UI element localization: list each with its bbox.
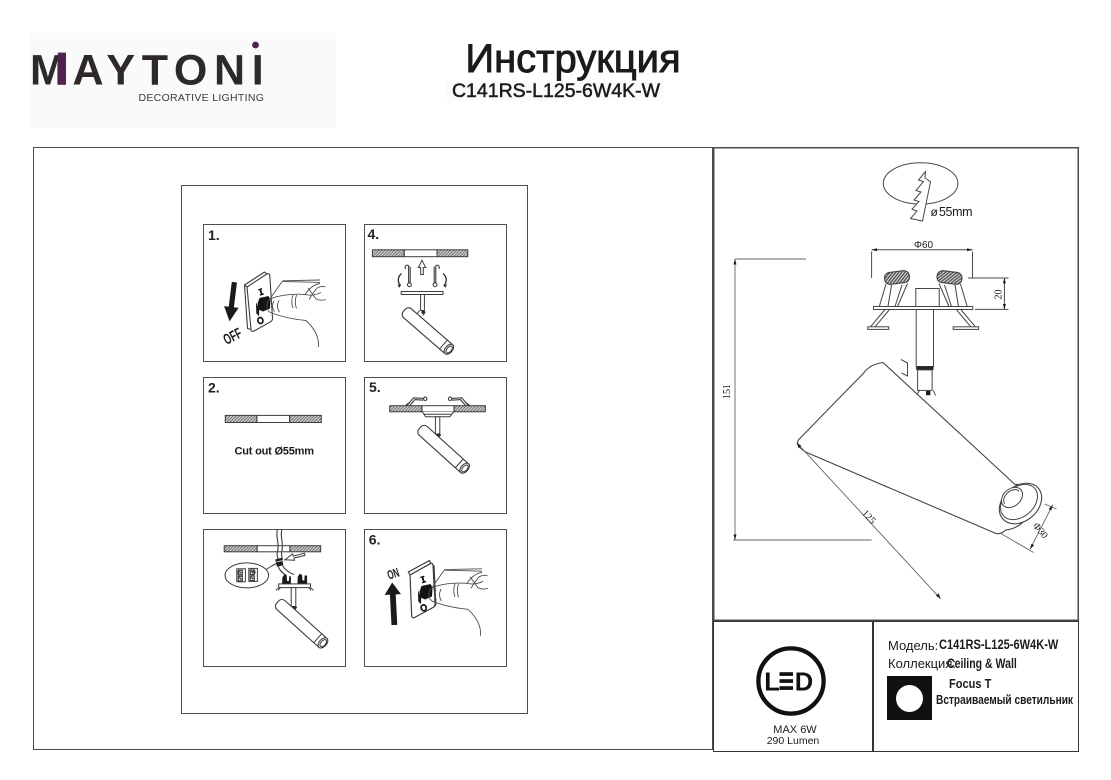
svg-text:55mm: 55mm	[939, 205, 972, 219]
svg-text:ø: ø	[931, 205, 939, 219]
svg-text:5.: 5.	[369, 379, 381, 395]
svg-text:20: 20	[994, 290, 1005, 300]
svg-text:2.: 2.	[208, 379, 220, 395]
svg-text:4.: 4.	[367, 226, 379, 242]
svg-text:DECORATIVE LIGHTING: DECORATIVE LIGHTING	[139, 92, 265, 104]
svg-text:MAYTONI: MAYTONI	[30, 47, 270, 95]
svg-text:L: L	[764, 668, 780, 696]
svg-text:L: L	[237, 570, 240, 575]
svg-text:N: N	[252, 570, 255, 575]
svg-text:1.: 1.	[208, 227, 220, 243]
svg-text:D: D	[795, 668, 813, 696]
svg-text:6.: 6.	[368, 532, 380, 548]
svg-text:Cut out Ø55mm: Cut out Ø55mm	[234, 445, 314, 457]
svg-text:151: 151	[722, 384, 733, 399]
